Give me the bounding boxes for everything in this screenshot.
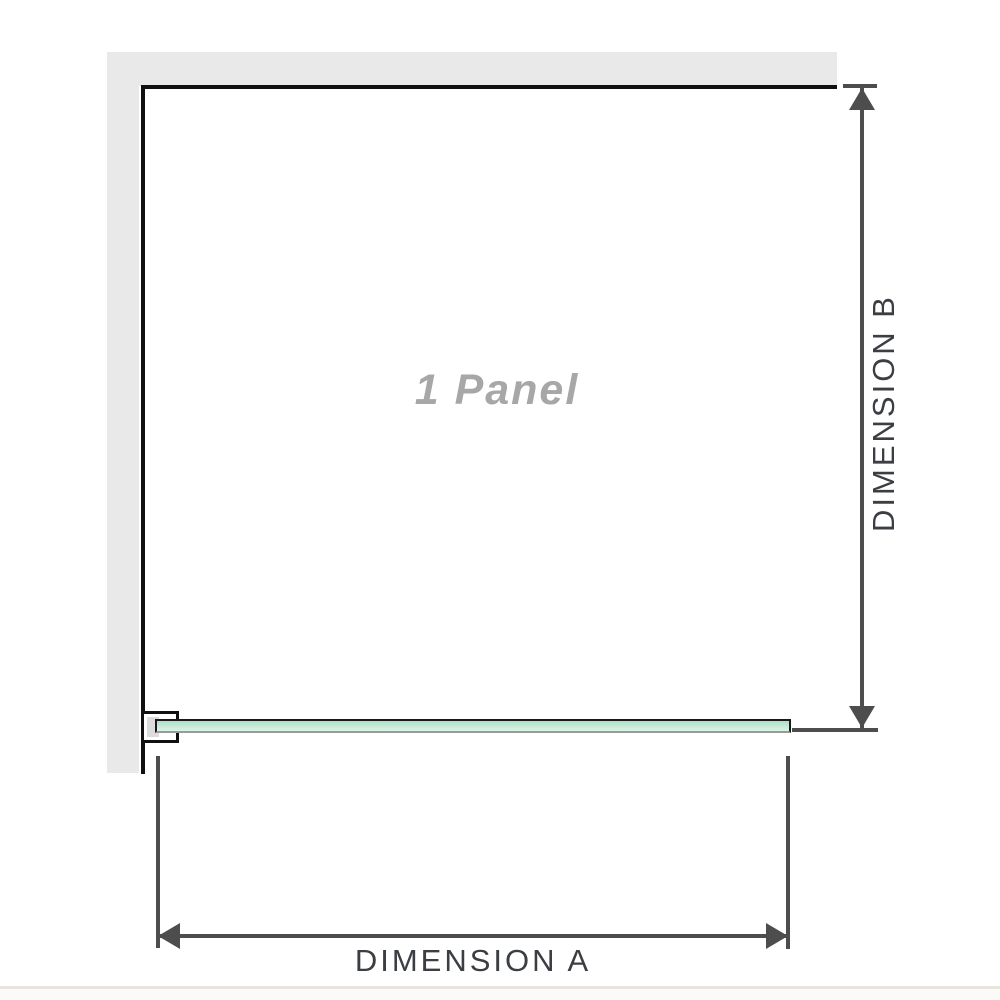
dimension-b-label: DIMENSION B: [866, 294, 902, 532]
dimension-a-extension-left: [156, 756, 160, 948]
panel-area: 1 Panel: [145, 89, 837, 719]
dimension-a-line: [158, 934, 788, 938]
footer-strip: [0, 989, 1000, 1000]
dimension-b-tick-bottom: [792, 728, 878, 732]
dimension-b-line: [860, 88, 864, 730]
dimension-a-extension-right: [786, 756, 790, 949]
wall-top-segment: [107, 52, 837, 86]
diagram-canvas: 1 Panel DIMENSION B DIMENSION A: [0, 0, 1000, 1000]
wall-left-segment: [107, 52, 139, 773]
up-arrowhead-icon: [849, 88, 875, 110]
dimension-a-label: DIMENSION A: [158, 943, 788, 979]
down-arrowhead-icon: [849, 706, 875, 728]
panel-count-label: 1 Panel: [415, 366, 580, 415]
glass-panel: [155, 719, 791, 733]
